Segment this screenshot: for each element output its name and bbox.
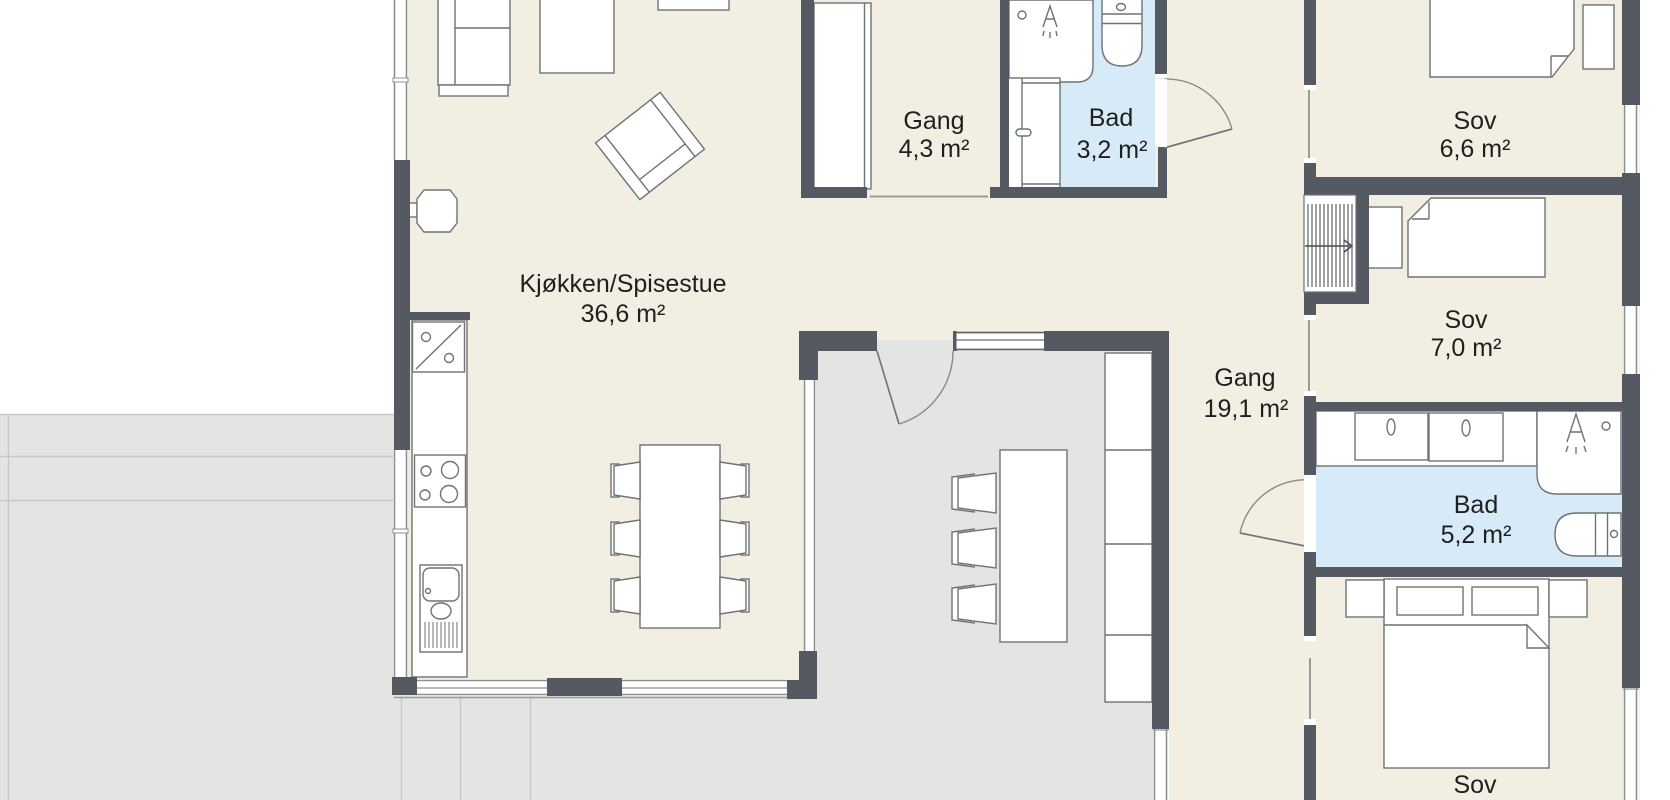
svg-text:6,6 m²: 6,6 m²: [1440, 135, 1511, 163]
svg-text:19,1 m²: 19,1 m²: [1204, 395, 1289, 423]
svg-text:4,3 m²: 4,3 m²: [899, 135, 970, 163]
svg-text:7,0 m²: 7,0 m²: [1431, 334, 1502, 362]
svg-text:5,2 m²: 5,2 m²: [1441, 521, 1512, 549]
svg-text:Kjøkken/Spisestue: Kjøkken/Spisestue: [519, 270, 726, 298]
svg-text:Gang: Gang: [1214, 364, 1275, 392]
svg-text:Sov: Sov: [1453, 107, 1497, 135]
svg-text:Bad: Bad: [1454, 491, 1498, 519]
svg-text:Gang: Gang: [903, 107, 964, 135]
svg-text:Bad: Bad: [1089, 104, 1133, 132]
svg-text:36,6 m²: 36,6 m²: [581, 300, 666, 328]
svg-text:Sov: Sov: [1444, 306, 1488, 334]
svg-text:Sov: Sov: [1453, 771, 1497, 799]
svg-text:3,2 m²: 3,2 m²: [1077, 136, 1148, 164]
